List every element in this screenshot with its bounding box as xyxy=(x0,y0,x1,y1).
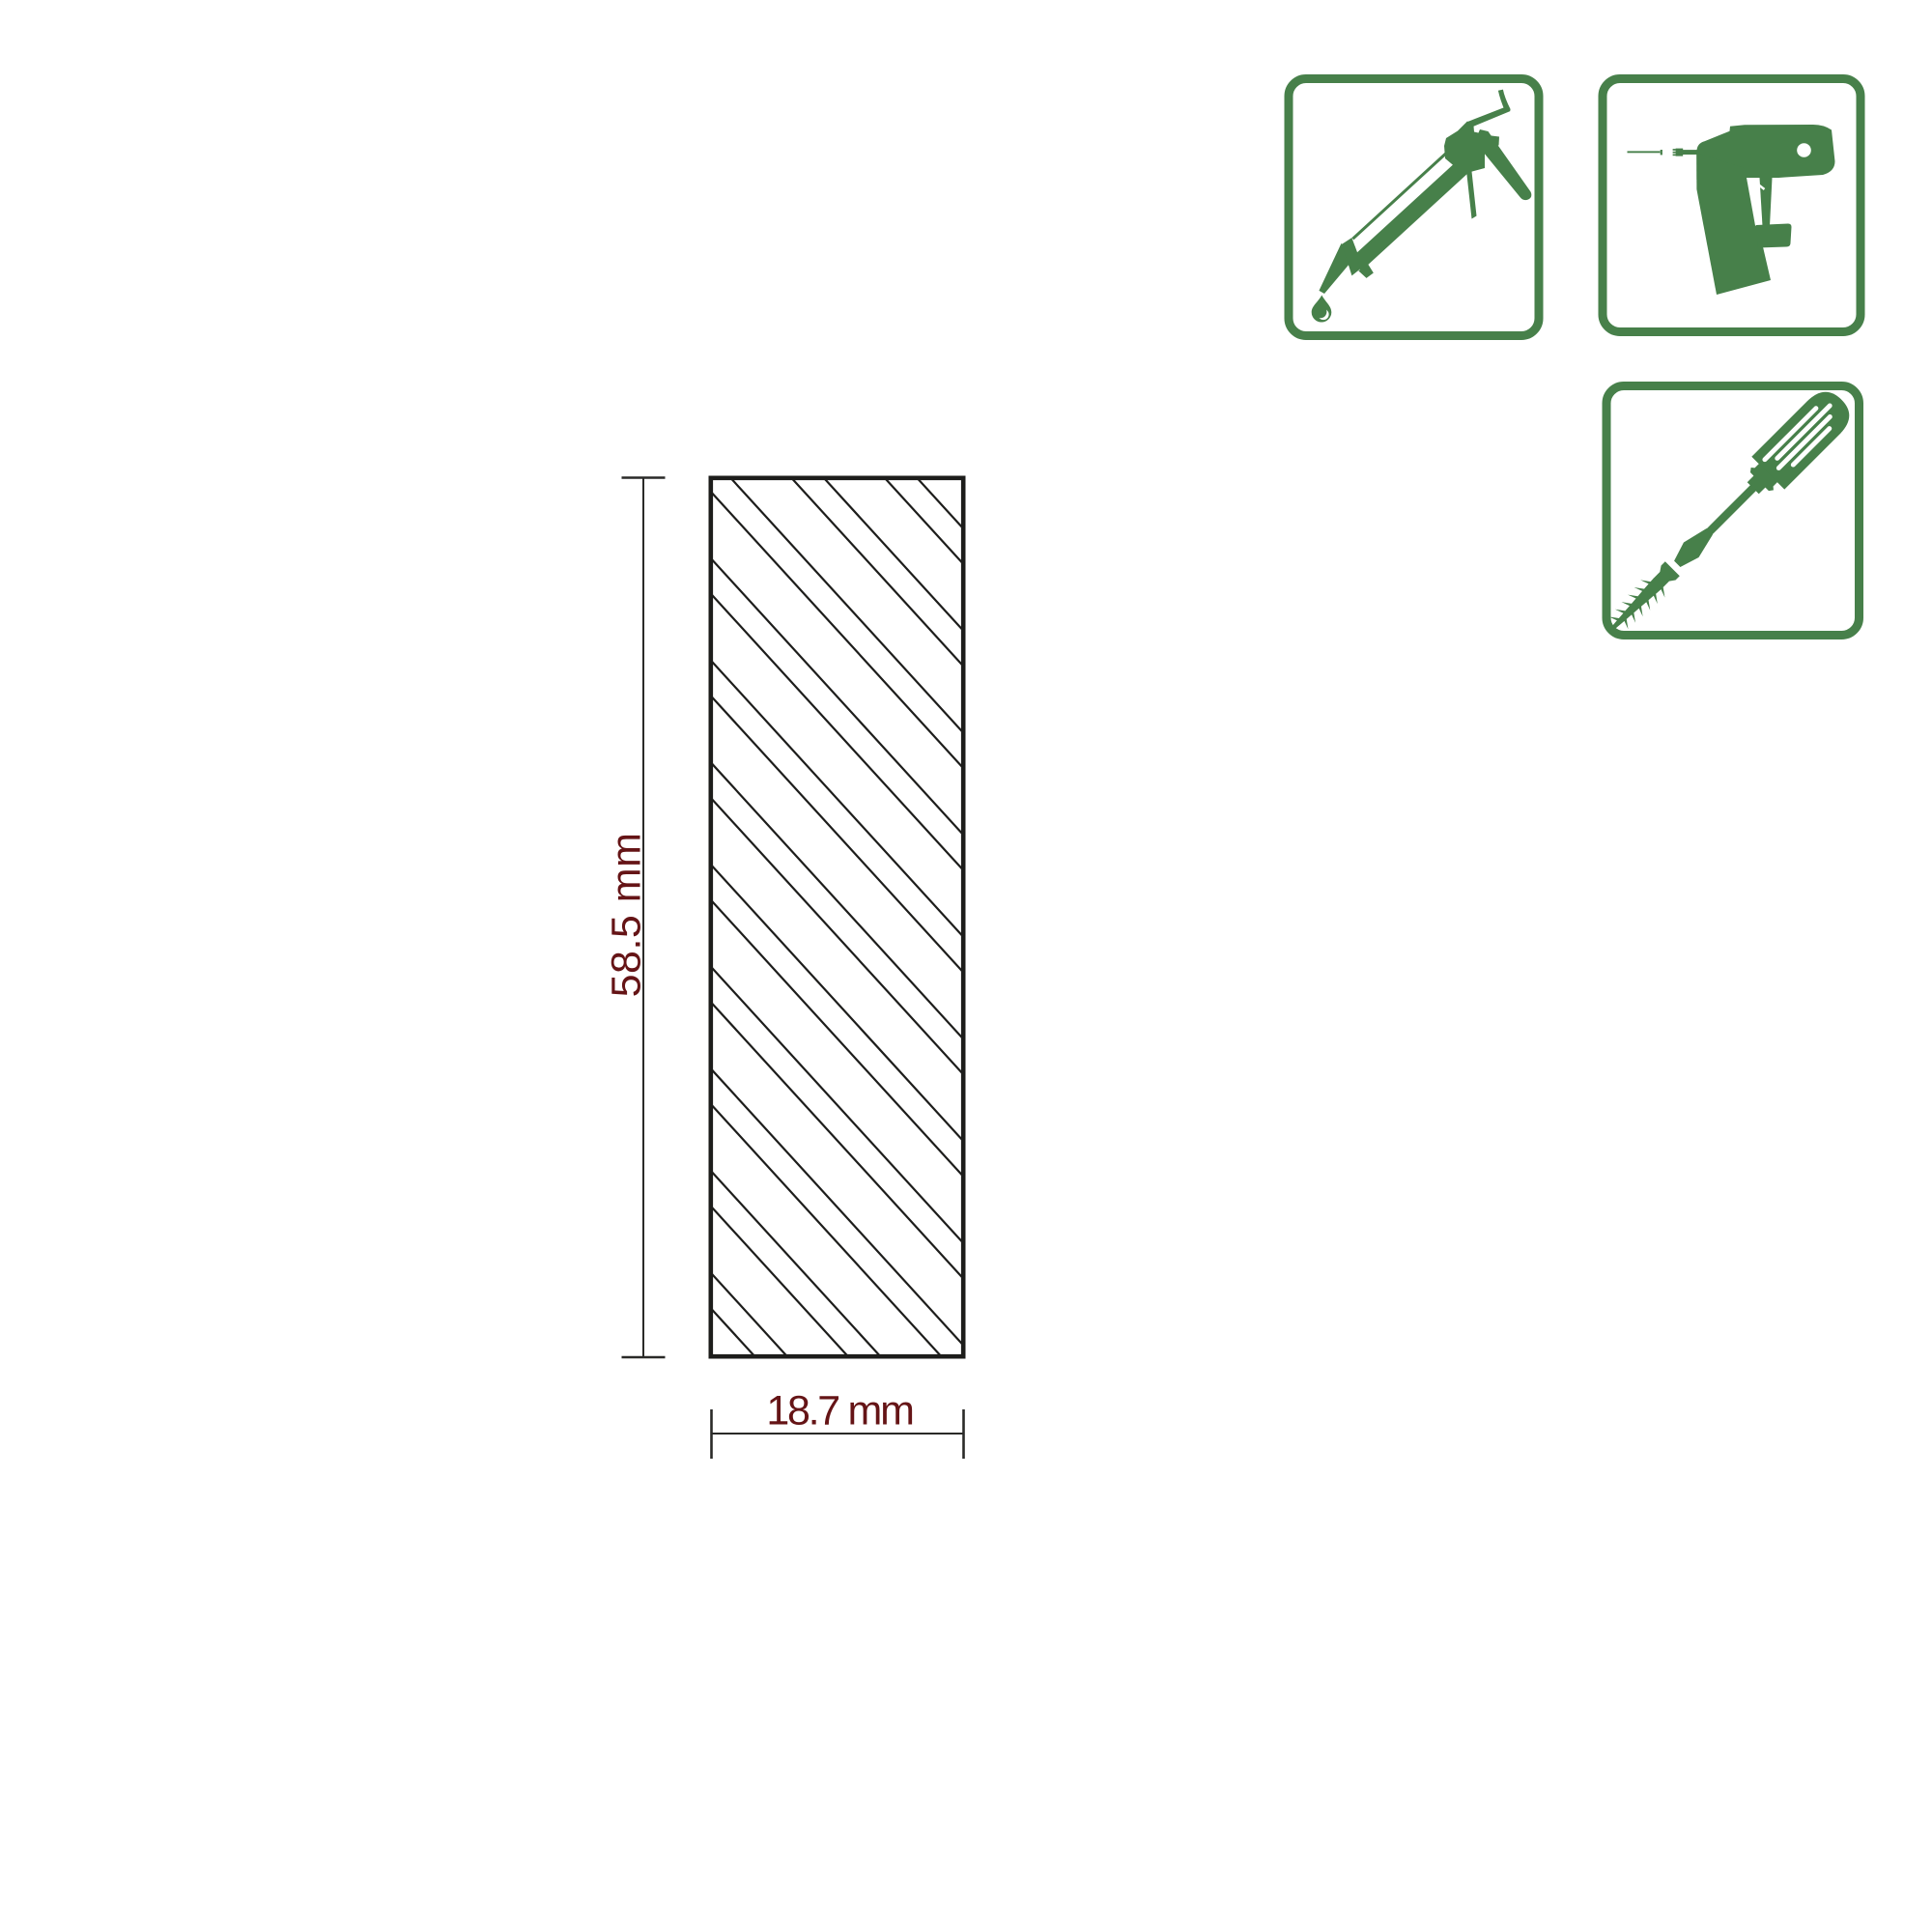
svg-text:18.7 mm: 18.7 mm xyxy=(766,1388,912,1435)
svg-text:58.5 mm: 58.5 mm xyxy=(604,833,650,998)
